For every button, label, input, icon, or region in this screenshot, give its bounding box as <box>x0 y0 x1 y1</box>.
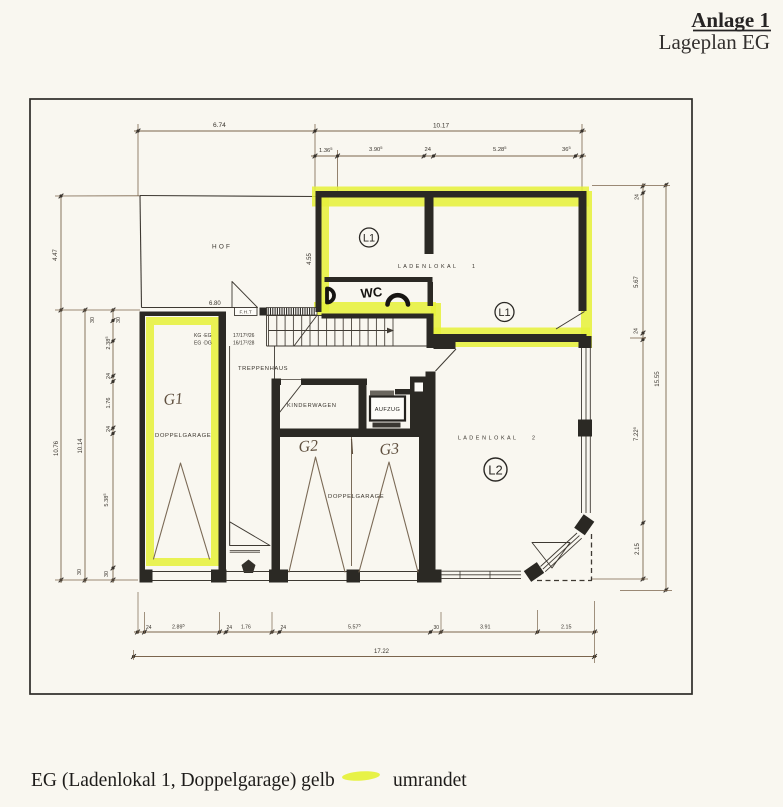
svg-text:10.17: 10.17 <box>433 123 449 130</box>
svg-text:KINDERWAGEN: KINDERWAGEN <box>287 403 337 409</box>
svg-text:10.14: 10.14 <box>78 438 84 454</box>
svg-text:AUFZUG: AUFZUG <box>375 407 400 413</box>
svg-text:16/172/28: 16/172/28 <box>233 340 255 347</box>
svg-text:30: 30 <box>434 625 440 631</box>
svg-text:DOPPELGARAGE: DOPPELGARAGE <box>328 494 384 500</box>
svg-text:KG ·EG: KG ·EG <box>194 333 212 339</box>
svg-text:umrandet: umrandet <box>393 770 467 791</box>
svg-text:24: 24 <box>634 328 640 334</box>
svg-text:L A D E N L O K A L: L A D E N L O K A L <box>398 264 457 270</box>
svg-text:L1: L1 <box>363 233 375 245</box>
svg-text:2.15: 2.15 <box>635 543 641 555</box>
svg-text:1.76: 1.76 <box>106 398 112 409</box>
svg-text:1: 1 <box>472 264 475 270</box>
svg-text:Anlage 1: Anlage 1 <box>691 8 770 32</box>
svg-text:HOF: HOF <box>212 244 232 251</box>
svg-text:24: 24 <box>425 147 432 153</box>
svg-text:L A D E N L O K A L: L A D E N L O K A L <box>458 436 517 442</box>
svg-text:3.91: 3.91 <box>480 625 491 631</box>
svg-text:L1: L1 <box>498 307 510 319</box>
svg-text:4.55: 4.55 <box>307 253 313 265</box>
svg-text:24: 24 <box>106 373 112 379</box>
svg-text:30: 30 <box>77 569 83 575</box>
svg-text:30: 30 <box>90 317 96 323</box>
svg-text:24: 24 <box>635 194 641 200</box>
svg-text:1.76: 1.76 <box>241 625 251 631</box>
svg-text:EG ·DG: EG ·DG <box>194 341 212 347</box>
svg-text:Lageplan EG: Lageplan EG <box>659 30 770 54</box>
svg-text:EG (Ladenlokal 1, Doppelgarage: EG (Ladenlokal 1, Doppelgarage) gelb <box>31 770 335 791</box>
svg-text:24: 24 <box>146 625 152 631</box>
svg-text:2.15: 2.15 <box>561 625 572 631</box>
svg-text:TREPPENHAUS: TREPPENHAUS <box>238 366 288 372</box>
svg-text:G1: G1 <box>163 390 184 409</box>
svg-text:G3: G3 <box>379 440 400 459</box>
svg-text:6.80: 6.80 <box>209 301 221 307</box>
svg-text:30: 30 <box>104 571 110 577</box>
svg-text:17.22: 17.22 <box>374 649 390 655</box>
svg-text:30: 30 <box>116 317 122 323</box>
svg-text:15.55: 15.55 <box>654 371 661 387</box>
svg-text:6.74: 6.74 <box>213 122 226 129</box>
svg-text:24: 24 <box>106 426 112 432</box>
svg-text:5.67: 5.67 <box>634 276 640 288</box>
svg-text:10.76: 10.76 <box>54 440 60 456</box>
svg-text:WC: WC <box>360 284 383 301</box>
svg-text:F.H.T: F.H.T <box>240 309 252 314</box>
svg-text:DOPPELGARAGE: DOPPELGARAGE <box>155 433 211 439</box>
svg-text:24: 24 <box>227 625 233 631</box>
svg-text:4.47: 4.47 <box>53 249 59 261</box>
svg-text:24: 24 <box>281 625 287 631</box>
svg-text:L2: L2 <box>488 463 502 478</box>
svg-text:17/179/26: 17/179/26 <box>233 332 255 339</box>
svg-text:G2: G2 <box>298 437 319 456</box>
svg-text:2: 2 <box>532 436 535 442</box>
